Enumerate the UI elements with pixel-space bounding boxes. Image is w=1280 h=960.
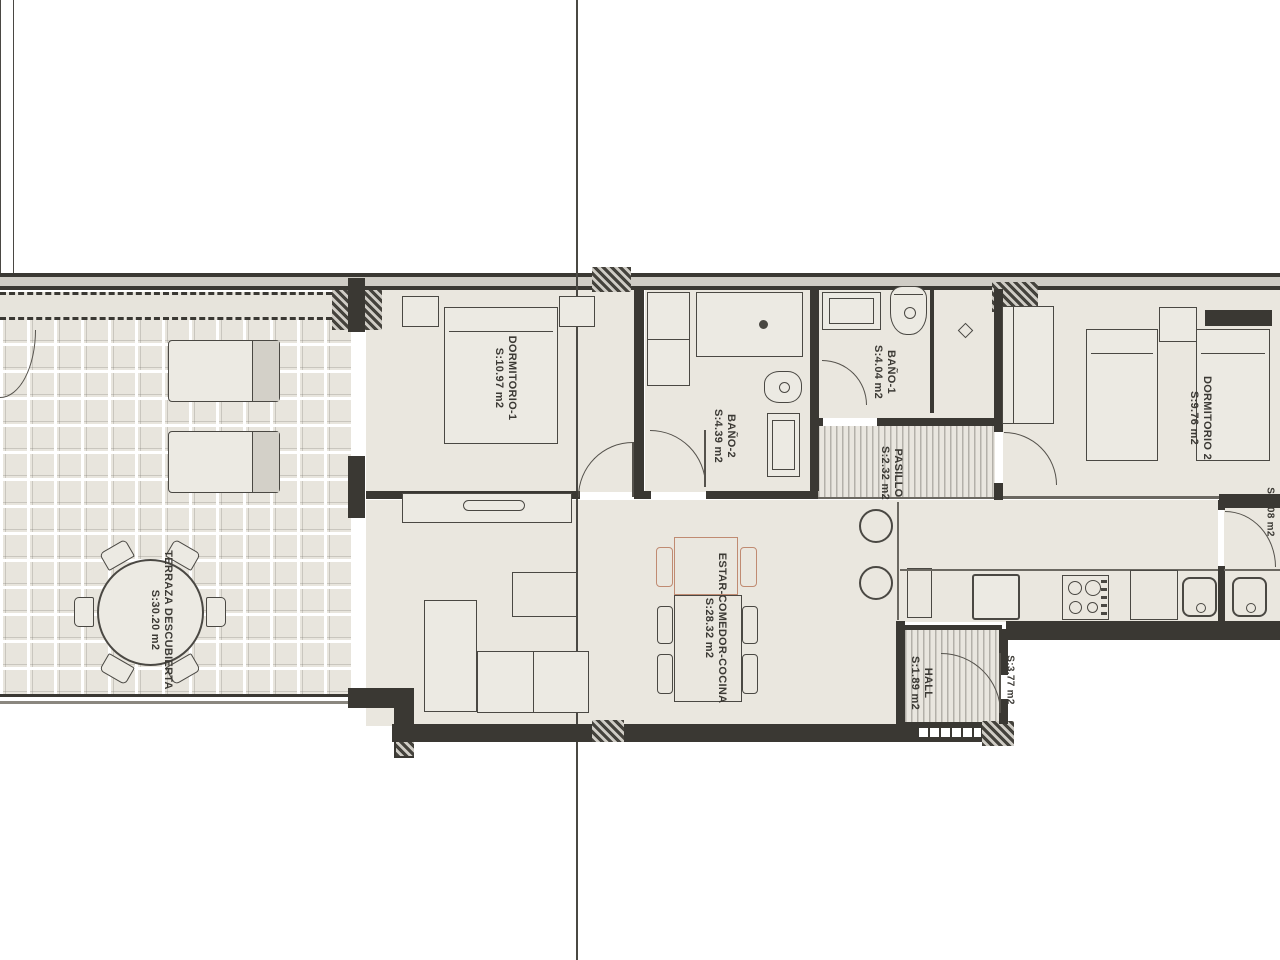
coffee-table-icon [512, 572, 578, 617]
wall [348, 278, 365, 332]
exterior-top-wall [0, 273, 1280, 290]
nightstand-icon [559, 296, 595, 327]
room-label-galeria: S:2.08 m2 [1264, 487, 1277, 536]
column [592, 720, 624, 742]
sun-lounger-icon [168, 431, 280, 493]
wall [634, 491, 651, 499]
dining-chair-icon [742, 654, 758, 694]
terrace-window [0, 124, 14, 294]
doormat-icon [918, 727, 982, 738]
nightstand-icon [1159, 307, 1197, 342]
dining-chair-icon [656, 547, 673, 587]
bar-counter-line [897, 502, 899, 620]
headboard-shade [1205, 310, 1272, 326]
dining-chair-icon [740, 547, 757, 587]
single-bed-icon [1086, 329, 1158, 461]
sink-icon [1182, 577, 1217, 617]
room-label-dormitorio2: DORMITORIO 2S:9.76 m2 [1187, 376, 1213, 460]
wall [818, 418, 823, 426]
sink-icon [1232, 577, 1267, 617]
wall [810, 289, 819, 491]
bath-cabinet-icon [647, 292, 690, 386]
room-label-hall: HALLS:1.89 m2 [908, 656, 934, 710]
wall [706, 491, 818, 499]
chair-icon [206, 597, 226, 627]
room-label-bano2: BAÑO-2S:4.39 m2 [711, 409, 737, 463]
kitchen-bottom-wall [1006, 621, 1280, 640]
washbasin-icon [767, 413, 800, 477]
washbasin-icon [822, 292, 881, 330]
floor-plan: TERRAZA DESCUBIERTAS:30.20 m2 DORMITORIO… [0, 0, 1280, 960]
chair-icon [74, 597, 94, 627]
planter-strip [0, 292, 332, 320]
counter-cabinet-icon [1130, 570, 1178, 620]
wall [994, 483, 1003, 500]
toilet-icon [764, 371, 802, 403]
kitchen-cabinet-icon [907, 568, 932, 618]
dining-chair-icon [742, 606, 758, 644]
door-leaf [999, 653, 1001, 713]
room-label-terraza: TERRAZA DESCUBIERTAS:30.20 m2 [148, 550, 174, 690]
room-pasillo [818, 426, 995, 498]
threshold-line [818, 497, 1002, 499]
sofa-chaise-icon [424, 600, 477, 712]
room-label-pasillo: PASILLOS:2.32 m2 [878, 446, 904, 500]
room-label-estar: ESTAR-COMEDOR-COCINAS:28.32 m2 [702, 553, 728, 704]
room-label-bano1: BAÑO-1S:4.04 m2 [871, 345, 897, 399]
dining-chair-icon [657, 654, 673, 694]
threshold-line [1002, 496, 1221, 499]
dining-chair-icon [657, 606, 673, 644]
sun-lounger-icon [168, 340, 280, 402]
room-label-rellano: S:3.77 m2 [1004, 655, 1017, 704]
stove-icon [1062, 575, 1109, 620]
column [982, 721, 1014, 746]
toilet-icon [890, 286, 927, 335]
door-leaf [632, 442, 634, 497]
room-label-dormitorio1: DORMITORIO-1S:10.97 m2 [492, 336, 518, 421]
wall [348, 456, 365, 518]
terrace-railing [0, 694, 360, 706]
hall-top-wall [905, 625, 1002, 630]
bar-stool-icon [859, 566, 893, 600]
door-leaf [704, 430, 706, 487]
counter-edge [1224, 569, 1280, 571]
galeria-wall [1218, 566, 1225, 622]
wall [877, 418, 1000, 426]
fridge-icon [972, 574, 1020, 620]
galeria-wall [1218, 500, 1225, 510]
nightstand-icon [402, 296, 439, 327]
shower-tray-icon [696, 292, 803, 357]
wardrobe-icon [1002, 306, 1054, 424]
sofa-icon [477, 651, 589, 713]
shower-partition [930, 289, 934, 413]
wall [634, 289, 644, 491]
exterior-bottom-wall [392, 724, 912, 742]
sideboard-icon [402, 493, 572, 523]
terrace-window [0, 0, 14, 124]
hall-left-wall [896, 621, 905, 742]
shaft-column [592, 267, 631, 292]
bar-stool-icon [859, 509, 893, 543]
